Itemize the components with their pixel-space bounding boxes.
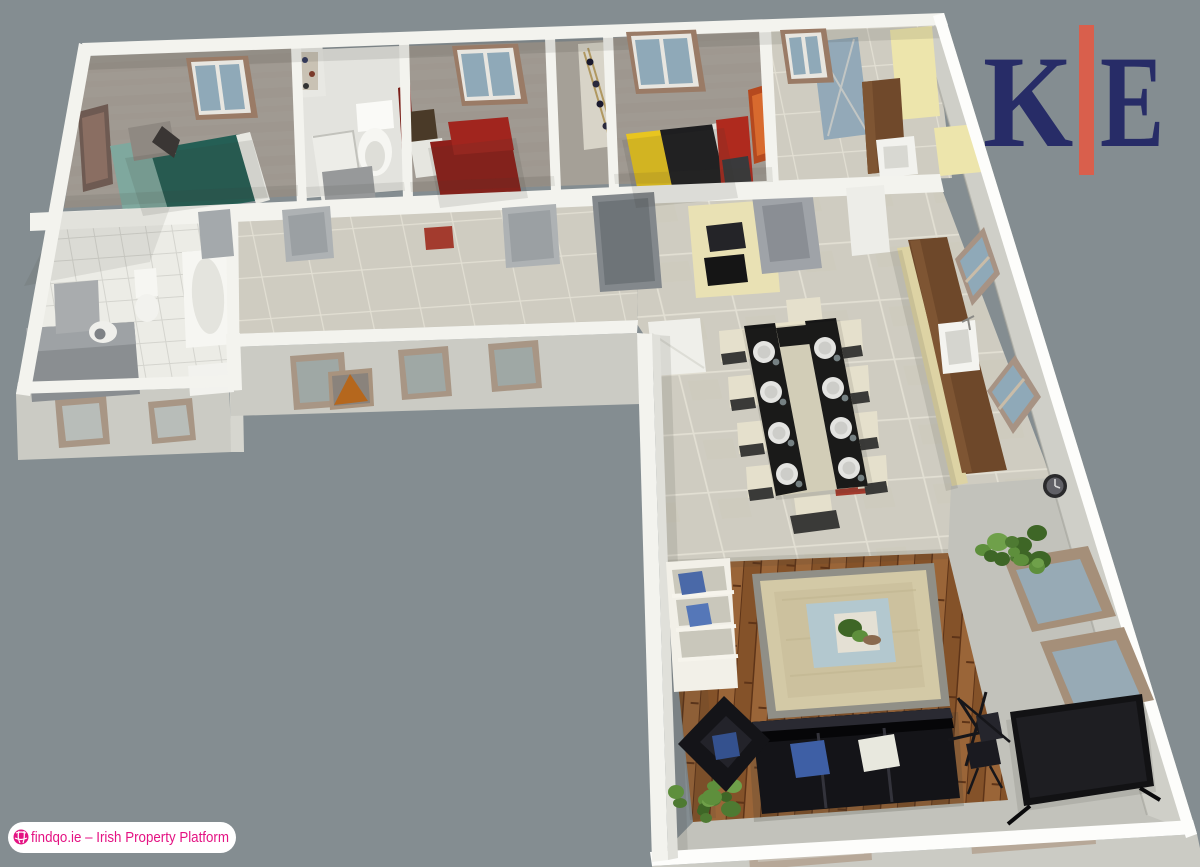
svg-text:E: E: [1100, 28, 1164, 174]
svg-text:K: K: [983, 28, 1073, 175]
svg-text:findqo.ie – Irish Property Pla: findqo.ie – Irish Property Platform: [31, 830, 229, 846]
